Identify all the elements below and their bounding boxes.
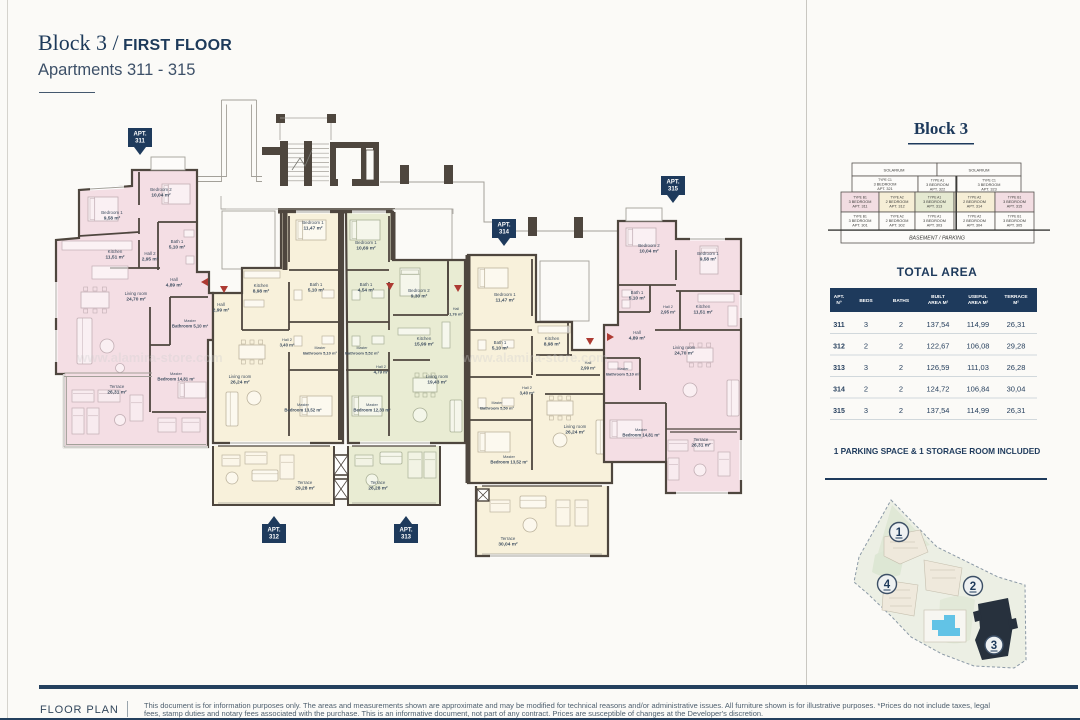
svg-text:Bath 1: Bath 1: [631, 290, 644, 295]
svg-text:15,99 m²: 15,99 m²: [414, 341, 434, 347]
svg-text:Master: Master: [170, 371, 183, 376]
svg-text:Living room: Living room: [229, 374, 252, 379]
svg-text:4,54 m²: 4,54 m²: [358, 287, 375, 293]
svg-text:APT. 321: APT. 321: [877, 187, 892, 191]
svg-text:Hall: Hall: [170, 277, 178, 282]
svg-text:3 BEDROOM: 3 BEDROOM: [1003, 200, 1026, 204]
svg-text:4: 4: [884, 579, 891, 591]
svg-text:Kitchen: Kitchen: [696, 304, 711, 309]
svg-text:2: 2: [899, 385, 903, 394]
svg-text:APT. 323: APT. 323: [981, 188, 996, 192]
svg-text:5,10 m²: 5,10 m²: [169, 244, 186, 250]
svg-text:26,31 m²: 26,31 m²: [691, 442, 711, 448]
svg-text:Bathroom 5,10 m²: Bathroom 5,10 m²: [606, 371, 640, 376]
svg-text:4,89 m²: 4,89 m²: [166, 282, 183, 288]
svg-text:Terrace: Terrace: [501, 536, 516, 541]
svg-text:106,08: 106,08: [967, 342, 990, 351]
svg-text:APT. 305: APT. 305: [1007, 224, 1022, 228]
svg-text:122,67: 122,67: [927, 342, 950, 351]
svg-text:Living room: Living room: [125, 291, 148, 296]
svg-text:Kitchen: Kitchen: [108, 249, 123, 254]
svg-text:Bedroom 14,81 m²: Bedroom 14,81 m²: [622, 432, 660, 437]
svg-text:3: 3: [991, 640, 997, 652]
svg-text:APT. 313: APT. 313: [927, 205, 942, 209]
svg-text:Hall 2: Hall 2: [376, 364, 386, 369]
svg-text:Bath 1: Bath 1: [171, 239, 184, 244]
svg-text:Bedroom 2: Bedroom 2: [408, 288, 430, 293]
svg-text:30,04: 30,04: [1007, 385, 1026, 394]
svg-text:29,28: 29,28: [1007, 342, 1026, 351]
svg-text:Master: Master: [492, 401, 504, 405]
svg-text:126,59: 126,59: [927, 363, 950, 372]
svg-text:137,54: 137,54: [927, 406, 950, 415]
svg-text:314: 314: [499, 230, 510, 236]
svg-text:BUILT: BUILT: [931, 294, 945, 300]
svg-text:APT. 312: APT. 312: [889, 205, 904, 209]
svg-text:2 BEDROOM: 2 BEDROOM: [886, 219, 909, 223]
svg-text:314: 314: [833, 387, 845, 394]
svg-text:Bedroom 1: Bedroom 1: [302, 220, 324, 225]
svg-text:311: 311: [833, 322, 844, 329]
svg-text:313: 313: [401, 535, 412, 541]
svg-text:TYPE C1: TYPE C1: [982, 179, 996, 183]
svg-text:Bathroom 5,10 m²: Bathroom 5,10 m²: [172, 323, 209, 328]
svg-text:26,28: 26,28: [1007, 363, 1026, 372]
svg-text:11,47 m²: 11,47 m²: [304, 225, 323, 231]
svg-text:APT. 311: APT. 311: [852, 205, 867, 209]
svg-text:2 BEDROOM: 2 BEDROOM: [886, 200, 909, 204]
svg-text:3,40 m²: 3,40 m²: [520, 390, 535, 395]
svg-text:AREA M²: AREA M²: [928, 300, 949, 306]
svg-text:Bathroom 5,50 m²: Bathroom 5,50 m²: [480, 405, 514, 410]
svg-text:3 BEDROOM: 3 BEDROOM: [923, 219, 946, 223]
svg-text:2: 2: [899, 363, 903, 372]
svg-text:APT. 302: APT. 302: [889, 224, 904, 228]
svg-text:2: 2: [864, 342, 868, 351]
svg-text:Living room: Living room: [673, 345, 696, 350]
svg-text:APT. 314: APT. 314: [967, 205, 982, 209]
svg-text:11,51 m²: 11,51 m²: [694, 309, 713, 315]
svg-text:Master: Master: [366, 402, 379, 407]
svg-text:Hall 2: Hall 2: [663, 304, 673, 309]
svg-text:Bedroom 13,52 m²: Bedroom 13,52 m²: [284, 407, 322, 412]
svg-text:Bath 1: Bath 1: [494, 340, 507, 345]
svg-text:1,76 m²: 1,76 m²: [449, 311, 463, 316]
svg-text:TYPE A2: TYPE A2: [968, 196, 982, 200]
svg-text:Kitchen: Kitchen: [254, 283, 269, 288]
svg-text:111,03: 111,03: [967, 363, 989, 372]
svg-text:312: 312: [833, 344, 845, 351]
svg-text:9,58 m²: 9,58 m²: [104, 215, 121, 221]
svg-text:10,69 m²: 10,69 m²: [356, 245, 376, 251]
svg-text:APT. 322: APT. 322: [930, 188, 945, 192]
svg-text:24,70 m²: 24,70 m²: [126, 296, 146, 302]
svg-text:3 BEDROOM: 3 BEDROOM: [849, 200, 872, 204]
svg-text:Bedroom 14,81 m²: Bedroom 14,81 m²: [157, 376, 195, 381]
svg-text:BASEMENT / PARKING: BASEMENT / PARKING: [909, 236, 965, 242]
svg-text:Master: Master: [184, 318, 197, 323]
svg-text:11,51 m²: 11,51 m²: [106, 254, 125, 260]
svg-text:10,04 m²: 10,04 m²: [639, 248, 659, 254]
svg-text:5,10 m²: 5,10 m²: [629, 295, 646, 301]
svg-text:2: 2: [970, 581, 976, 593]
svg-text:Terrace: Terrace: [371, 480, 386, 485]
svg-text:2,99 m²: 2,99 m²: [581, 365, 596, 370]
svg-text:313: 313: [833, 365, 845, 372]
svg-text:26,31: 26,31: [1007, 320, 1026, 329]
svg-text:Hall 2: Hall 2: [144, 251, 156, 256]
svg-text:TYPE B1: TYPE B1: [1008, 196, 1022, 200]
svg-text:TYPE A1: TYPE A1: [931, 179, 945, 183]
svg-text:Kitchen: Kitchen: [545, 336, 560, 341]
svg-text:Hall 2: Hall 2: [282, 337, 292, 342]
svg-text:TOTAL AREA: TOTAL AREA: [897, 265, 978, 279]
svg-text:APT.: APT.: [399, 528, 412, 534]
svg-text:Bedroom 2: Bedroom 2: [150, 187, 172, 192]
svg-text:3,40 m²: 3,40 m²: [280, 342, 295, 347]
svg-text:Terrace: Terrace: [110, 384, 125, 389]
svg-text:www.alamira-store.com: www.alamira-store.com: [76, 350, 222, 365]
svg-text:Bedroom 2: Bedroom 2: [638, 243, 660, 248]
svg-text:29,28 m²: 29,28 m²: [295, 485, 315, 491]
svg-text:TYPE C1: TYPE C1: [878, 178, 892, 182]
svg-text:124,72: 124,72: [927, 385, 950, 394]
svg-text:SOLARIUM: SOLARIUM: [884, 168, 905, 173]
svg-text:APT.: APT.: [497, 223, 510, 229]
svg-text:4,79 m²: 4,79 m²: [374, 369, 389, 374]
svg-text:Bath 1: Bath 1: [360, 282, 373, 287]
svg-text:2: 2: [899, 406, 903, 415]
svg-text:Living room: Living room: [426, 374, 449, 379]
svg-text:Hall: Hall: [453, 307, 459, 311]
svg-text:APT. 315: APT. 315: [1007, 205, 1022, 209]
svg-text:Bath 1: Bath 1: [310, 282, 323, 287]
svg-text:Bedroom 1: Bedroom 1: [101, 210, 123, 215]
svg-text:24,70 m²: 24,70 m²: [674, 350, 694, 356]
svg-text:Master: Master: [503, 454, 516, 459]
svg-text:3 BEDROOM: 3 BEDROOM: [849, 219, 872, 223]
svg-text:Terrace: Terrace: [694, 437, 709, 442]
svg-text:106,84: 106,84: [967, 385, 990, 394]
svg-text:APT. 304: APT. 304: [967, 224, 982, 228]
svg-text:Bedroom 13,52 m²: Bedroom 13,52 m²: [490, 459, 528, 464]
svg-text:Master: Master: [618, 367, 630, 371]
svg-text:26,24 m²: 26,24 m²: [565, 429, 585, 435]
svg-text:311: 311: [135, 139, 145, 145]
svg-text:3 BEDROOM: 3 BEDROOM: [1003, 219, 1026, 223]
svg-text:2: 2: [864, 385, 868, 394]
svg-text:Bedroom 1: Bedroom 1: [697, 251, 719, 256]
svg-text:2,95 m²: 2,95 m²: [661, 309, 676, 314]
svg-text:2: 2: [899, 342, 903, 351]
svg-text:4,89 m²: 4,89 m²: [629, 335, 646, 341]
svg-text:30,04 m²: 30,04 m²: [498, 541, 518, 547]
svg-text:137,54: 137,54: [927, 320, 950, 329]
svg-text:TYPE B1: TYPE B1: [1008, 215, 1022, 219]
svg-text:BEDS: BEDS: [859, 298, 873, 304]
svg-text:1: 1: [896, 527, 903, 539]
svg-text:2 BEDROOM: 2 BEDROOM: [963, 219, 986, 223]
svg-text:TYPE B1: TYPE B1: [853, 196, 867, 200]
svg-text:APT. 301: APT. 301: [852, 224, 867, 228]
svg-text:3 BEDROOM: 3 BEDROOM: [923, 200, 946, 204]
svg-text:312: 312: [269, 535, 280, 541]
svg-text:Hall 2: Hall 2: [522, 385, 532, 390]
svg-text:Bedroom 12,33 m²: Bedroom 12,33 m²: [353, 407, 391, 412]
svg-text:3 BEDROOM: 3 BEDROOM: [926, 183, 949, 187]
svg-text:2 BEDROOM: 2 BEDROOM: [963, 200, 986, 204]
svg-text:11,47 m²: 11,47 m²: [496, 297, 515, 303]
svg-text:TYPE A1: TYPE A1: [928, 215, 942, 219]
svg-text:26,31 m²: 26,31 m²: [107, 389, 127, 395]
svg-text:TYPE A2: TYPE A2: [890, 196, 904, 200]
svg-text:3 BEDROOM: 3 BEDROOM: [874, 183, 897, 187]
svg-text:10,04 m²: 10,04 m²: [151, 192, 171, 198]
svg-text:APT.: APT.: [133, 132, 146, 138]
svg-text:Block 3: Block 3: [914, 119, 968, 138]
svg-text:USEFUL: USEFUL: [968, 294, 987, 300]
svg-text:315: 315: [668, 187, 679, 193]
svg-text:TYPE A2: TYPE A2: [968, 215, 982, 219]
svg-text:9,58 m²: 9,58 m²: [700, 256, 717, 262]
svg-text:APT.: APT.: [834, 294, 844, 300]
svg-text:APT. 303: APT. 303: [927, 224, 942, 228]
svg-text:3: 3: [864, 363, 868, 372]
svg-text:9,30 m²: 9,30 m²: [411, 293, 428, 299]
svg-text:8,98 m²: 8,98 m²: [544, 341, 561, 347]
svg-text:Bedroom 1: Bedroom 1: [494, 292, 516, 297]
svg-text:Master: Master: [297, 402, 310, 407]
svg-text:TERRACE: TERRACE: [1004, 294, 1028, 300]
svg-text:Hall: Hall: [217, 302, 225, 307]
svg-text:Master: Master: [357, 346, 369, 350]
svg-text:2,99 m²: 2,99 m²: [213, 307, 230, 313]
svg-text:5,10 m²: 5,10 m²: [308, 287, 325, 293]
svg-text:2: 2: [899, 320, 903, 329]
svg-text:TYPE A1: TYPE A1: [928, 196, 942, 200]
svg-text:Master: Master: [635, 427, 648, 432]
svg-text:Living room: Living room: [564, 424, 587, 429]
svg-text:Master: Master: [315, 346, 327, 350]
svg-text:Terrace: Terrace: [298, 480, 313, 485]
svg-text:Bedroom 1: Bedroom 1: [355, 240, 377, 245]
svg-text:26,28 m²: 26,28 m²: [368, 485, 388, 491]
svg-text:TYPE A2: TYPE A2: [890, 215, 904, 219]
svg-text:3 BEDROOM: 3 BEDROOM: [978, 183, 1001, 187]
svg-text:Nº: Nº: [836, 300, 841, 306]
svg-text:APT.: APT.: [666, 180, 679, 186]
svg-text:AREA M²: AREA M²: [968, 300, 989, 306]
svg-text:TYPE B1: TYPE B1: [853, 215, 867, 219]
svg-text:26,24 m²: 26,24 m²: [230, 379, 250, 385]
svg-text:Bathroom 5,52 m²: Bathroom 5,52 m²: [345, 350, 379, 355]
svg-text:2,95 m²: 2,95 m²: [142, 256, 159, 262]
svg-text:APT.: APT.: [267, 528, 280, 534]
svg-text:SOLARIUM: SOLARIUM: [969, 168, 990, 173]
svg-text:26,31: 26,31: [1007, 406, 1026, 415]
svg-text:BATHS: BATHS: [893, 298, 910, 304]
svg-text:114,99: 114,99: [967, 320, 989, 329]
svg-text:M²: M²: [1013, 300, 1019, 306]
svg-text:3: 3: [864, 406, 868, 415]
svg-text:3: 3: [864, 320, 868, 329]
svg-text:Bathroom 5,10 m²: Bathroom 5,10 m²: [303, 350, 337, 355]
svg-text:1 PARKING SPACE & 1 STORAGE RO: 1 PARKING SPACE & 1 STORAGE ROOM INCLUDE…: [834, 446, 1041, 456]
svg-text:www.alamira-store.com: www.alamira-store.com: [461, 350, 607, 365]
svg-text:Kitchen: Kitchen: [417, 336, 432, 341]
svg-text:Hall: Hall: [633, 330, 641, 335]
svg-text:315: 315: [833, 408, 845, 415]
svg-text:114,99: 114,99: [967, 406, 989, 415]
svg-text:19,43 m²: 19,43 m²: [427, 379, 447, 385]
svg-text:8,98 m²: 8,98 m²: [253, 288, 270, 294]
